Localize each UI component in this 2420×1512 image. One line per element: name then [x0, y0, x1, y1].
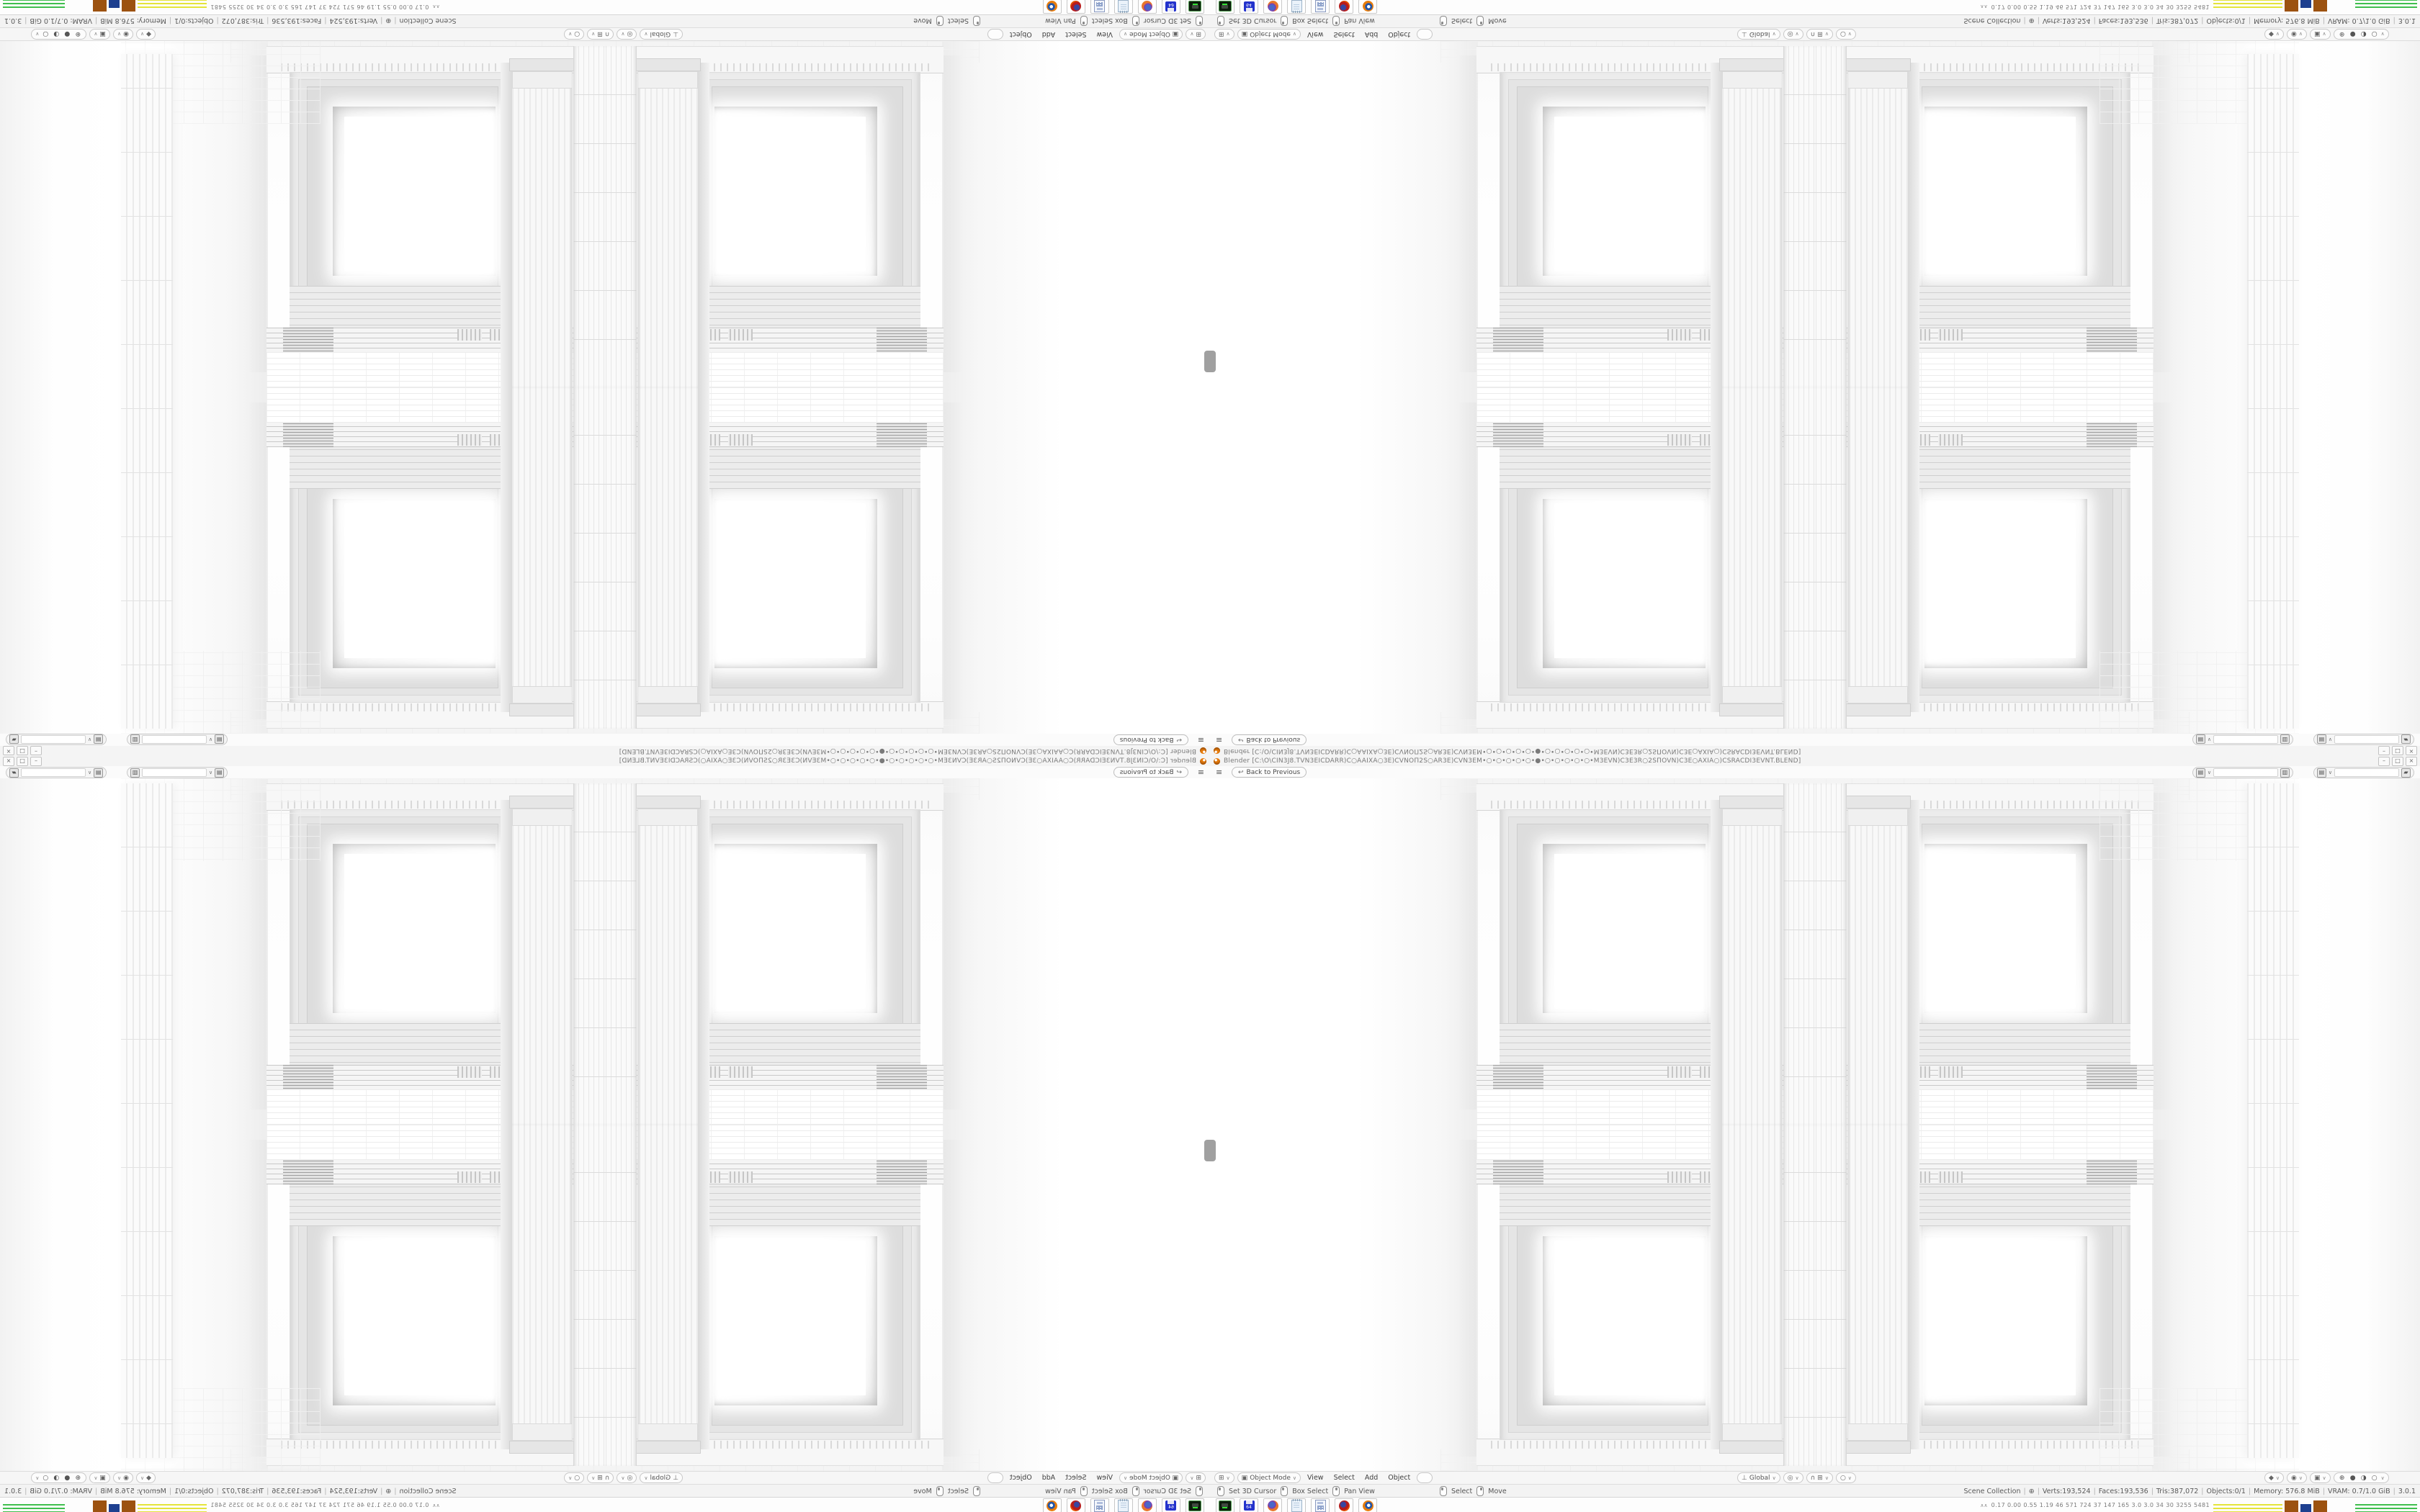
- snap-controls[interactable]: ∩ ⊞ ∨: [587, 29, 614, 40]
- desktop-taskbar: 64 ∧∧ 0.17 0.00 0.55 1.19 46 571 724 37 …: [0, 0, 1210, 15]
- render-window-glow: [344, 1241, 491, 1395]
- view-layer-selector[interactable]: ▤ ∨ ▰: [2313, 767, 2414, 778]
- kaleidoscope-canvas: Blender [C:\O\CIN3J8.TVN3EICDARR)C○AAIXA…: [0, 0, 2420, 1512]
- menu-select[interactable]: Select: [1062, 1474, 1090, 1482]
- menu-object[interactable]: Object: [1006, 1474, 1036, 1482]
- editor-type-selector[interactable]: ⊞ ∨: [1214, 29, 1234, 40]
- chevron-down-icon: ∨: [591, 1475, 595, 1481]
- render-ledge-shadow: [2087, 423, 2137, 447]
- menu-view[interactable]: View: [1304, 30, 1327, 38]
- mouse-left-icon: [1217, 1486, 1224, 1496]
- menu-object[interactable]: Object: [1384, 30, 1414, 38]
- view-layer-new-button[interactable]: ▰: [9, 768, 19, 778]
- close-button[interactable]: ×: [3, 757, 14, 766]
- scene-selector[interactable]: ▤ ∨ ▥: [127, 767, 228, 778]
- render-window-sill: [290, 1184, 511, 1226]
- monitor-values: 0.17 0.00 0.55 1.19 46 571 724 37 147 16…: [210, 1502, 429, 1508]
- chart-brown-bar: [122, 1, 135, 12]
- transform-orientation-selector[interactable]: ⊥ Global ∨: [1737, 29, 1780, 40]
- calculator-icon: [1095, 1, 1106, 13]
- show-gizmo-toggle[interactable]: ◆ ∨: [2264, 1472, 2284, 1483]
- render-ledge-shadow: [2087, 1065, 2137, 1089]
- menu-select[interactable]: Select: [1062, 30, 1090, 38]
- render-window-frame: [290, 447, 511, 703]
- render-ledge-shadow: [877, 328, 927, 352]
- proportional-editing-toggle[interactable]: ○ ∨: [564, 29, 584, 40]
- shading-mode-group[interactable]: ⊕ ● ◑ ○ ∨: [2334, 1472, 2389, 1483]
- show-overlays-toggle[interactable]: ◉ ∨: [113, 1472, 133, 1483]
- back-icon: ↩: [1176, 737, 1182, 744]
- scene-name-field[interactable]: [142, 768, 207, 777]
- xray-toggle[interactable]: ▣ ∨: [2310, 29, 2331, 40]
- scene-name-field[interactable]: [2213, 735, 2278, 744]
- monitor-chevrons-icon: ∧∧: [1980, 1504, 1987, 1507]
- viewport-scene-cell: [605, 387, 1210, 734]
- render-window-glow: [719, 1241, 866, 1395]
- xray-toggle[interactable]: ▣ ∨: [89, 1472, 110, 1483]
- shading-mode-group[interactable]: ⊕ ● ◑ ○ ∨: [31, 29, 86, 40]
- show-overlays-toggle[interactable]: ◉ ∨: [2287, 29, 2307, 40]
- status-bar: Set 3D Cursor Box Select Pan View Select…: [1210, 1484, 2420, 1498]
- chevron-down-icon[interactable]: ∨: [2208, 770, 2211, 775]
- chart-brown-bar: [122, 1500, 135, 1512]
- render-center-column: [573, 1125, 605, 1466]
- render-side-wall: [942, 778, 1210, 1125]
- taskbar-firefox-alt-button[interactable]: [1335, 0, 1353, 14]
- menu-object[interactable]: Object: [1006, 30, 1036, 38]
- chevron-down-icon: ∨: [1124, 1475, 1127, 1481]
- 3d-viewport[interactable]: [1210, 41, 2420, 734]
- render-window-opening: [1543, 1236, 1706, 1405]
- taskbar-floppy-button[interactable]: 64: [1162, 0, 1180, 14]
- desktop-taskbar: 64 ∧∧ 0.17 0.00 0.55 1.19 46 571 724 37 …: [1210, 0, 2420, 15]
- show-gizmo-toggle[interactable]: ◆ ∨: [136, 1472, 156, 1483]
- stat-verts: Verts:193,524: [329, 17, 377, 25]
- chevron-down-icon: ∨: [94, 32, 97, 37]
- maximize-button[interactable]: □: [17, 746, 28, 755]
- proportional-editing-toggle[interactable]: ○ ∨: [1836, 29, 1856, 40]
- chart-yellow-lines: [138, 1, 207, 9]
- chevron-down-icon[interactable]: ∨: [2329, 737, 2332, 742]
- close-button[interactable]: ×: [3, 746, 14, 755]
- mouse-drag-icon: [1281, 16, 1288, 26]
- scene-icon: ▤: [215, 735, 224, 744]
- back-to-previous-button[interactable]: ↩ Back to Previous: [1232, 767, 1307, 778]
- render-shadow-edge: [1458, 55, 1476, 372]
- calculator-icon: [1095, 1500, 1106, 1512]
- wireframe-shading-icon[interactable]: ⊕: [2338, 30, 2347, 39]
- render-window-frame: [1500, 1184, 1721, 1440]
- 3d-viewport[interactable]: [0, 41, 1210, 734]
- monitor-mini-chart: [2213, 1, 2417, 14]
- viewport-scene-cell: [605, 778, 1210, 1125]
- taskbar-blender-button[interactable]: [1043, 0, 1062, 14]
- viewport-scene-cell: [605, 41, 1210, 387]
- solid-shading-icon[interactable]: ●: [2349, 30, 2357, 39]
- render-bloom: [2299, 778, 2420, 1471]
- maximize-button[interactable]: □: [17, 757, 28, 766]
- maximize-button[interactable]: □: [2392, 746, 2403, 755]
- transform-orientation-selector[interactable]: ⊥ Global ∨: [640, 1472, 683, 1483]
- render-window-sill: [699, 1023, 920, 1065]
- scene-name-field[interactable]: [2213, 768, 2278, 777]
- blender-icon: [1363, 1500, 1373, 1511]
- view-layer-new-button[interactable]: ▰: [9, 735, 19, 744]
- render-pilaster: [637, 58, 698, 387]
- chevron-down-icon[interactable]: ∨: [2329, 770, 2332, 775]
- material-shading-icon[interactable]: ◑: [52, 1474, 60, 1482]
- view-layer-name-field[interactable]: [21, 768, 86, 777]
- render-window-sill: [1500, 286, 1721, 328]
- shading-mode-group[interactable]: ⊕ ● ◑ ○ ∨: [31, 1472, 86, 1483]
- taskbar-text-editor-button[interactable]: [1287, 1498, 1306, 1512]
- menu-icon[interactable]: ≡: [1216, 768, 1222, 777]
- taskbar-firefox-button[interactable]: [1263, 0, 1282, 14]
- mouse-drag-icon: [1132, 16, 1139, 26]
- active-tool-indicator[interactable]: [987, 1472, 1003, 1483]
- stat-faces: Faces:193,536: [272, 1488, 321, 1495]
- scene-new-button[interactable]: ▥: [130, 735, 140, 744]
- scene-new-button[interactable]: ▥: [2280, 735, 2290, 744]
- render-ledge-shadow: [283, 1065, 333, 1089]
- taskbar-blender-button[interactable]: [1358, 0, 1377, 14]
- chevron-down-icon: ∨: [2276, 1475, 2280, 1481]
- solid-shading-icon[interactable]: ●: [2349, 1474, 2357, 1482]
- rendered-shading-icon[interactable]: ○: [2370, 30, 2379, 39]
- render-bloom: [2299, 41, 2420, 734]
- hint-set-3d-cursor: Set 3D Cursor: [1144, 1488, 1191, 1495]
- snap-controls[interactable]: ∩ ⊞ ∨: [587, 1472, 614, 1483]
- active-tool-indicator[interactable]: [987, 29, 1003, 40]
- sidebar-toggle-tab[interactable]: [1210, 351, 1216, 372]
- render-ledge-shadow: [877, 1160, 927, 1184]
- firefox-icon: [1268, 1, 1278, 12]
- show-overlays-toggle[interactable]: ◉ ∨: [113, 29, 133, 40]
- material-shading-icon[interactable]: ◑: [2359, 30, 2368, 39]
- solid-shading-icon[interactable]: ●: [63, 1474, 71, 1482]
- firefox-icon: [1142, 1, 1153, 12]
- pivot-icon: ◎: [627, 1475, 632, 1482]
- menu-select[interactable]: Select: [1330, 1474, 1358, 1482]
- render-center-column: [1783, 46, 1815, 387]
- gizmo-icon: ◆: [146, 31, 151, 38]
- chevron-down-icon[interactable]: ∨: [2208, 737, 2211, 742]
- blender-topbar: ≡ ↩ Back to Previous ▤ ∨ ▥ ▤ ∨ ▰: [0, 733, 1210, 746]
- view-layer-new-button[interactable]: ▰: [2401, 768, 2411, 778]
- firefox-icon: [1268, 1500, 1278, 1511]
- blender-app-icon: [1214, 758, 1220, 765]
- taskbar-terminal-button[interactable]: [1186, 0, 1204, 14]
- sidebar-toggle-tab[interactable]: [1210, 1140, 1216, 1161]
- monitor-chevrons-icon: ∧∧: [432, 1504, 439, 1507]
- view-layer-selector[interactable]: ▤ ∨ ▰: [6, 767, 107, 778]
- close-button[interactable]: ×: [2406, 746, 2417, 755]
- material-shading-icon[interactable]: ◑: [52, 30, 60, 39]
- taskbar-firefox-alt-button[interactable]: [1335, 1498, 1353, 1512]
- taskbar-terminal-button[interactable]: [1216, 0, 1234, 14]
- render-window-glow: [1554, 854, 1701, 1009]
- mode-selector[interactable]: ▣ Object Mode ∨: [1119, 1472, 1183, 1483]
- hint-box-select: Box Select: [1292, 17, 1328, 25]
- mode-selector[interactable]: ▣ Object Mode ∨: [1237, 1472, 1301, 1483]
- render-bloom: [0, 778, 121, 1471]
- minimize-button[interactable]: –: [30, 757, 42, 766]
- mouse-right-icon: [1476, 1486, 1484, 1496]
- taskbar-firefox-alt-button[interactable]: [1067, 0, 1085, 14]
- xray-toggle[interactable]: ▣ ∨: [2310, 1472, 2331, 1483]
- view-layer-selector[interactable]: ▤ ∨ ▰: [6, 734, 107, 745]
- chevron-down-icon[interactable]: ∨: [209, 737, 212, 742]
- back-label: Back to Previous: [1120, 769, 1174, 776]
- chevron-down-icon[interactable]: ∨: [88, 737, 91, 742]
- stat-version: 3.0.1: [4, 17, 22, 25]
- menu-add[interactable]: Add: [1361, 1474, 1381, 1482]
- wireframe-shading-icon[interactable]: ⊕: [73, 30, 82, 39]
- xray-icon: ▣: [99, 31, 106, 38]
- render-pilaster: [1722, 796, 1783, 1125]
- render-shadow-edge: [1458, 793, 1476, 1110]
- scene-quadrant-bottom-left: [605, 1125, 1210, 1471]
- taskbar-firefox-button[interactable]: [1138, 0, 1157, 14]
- rendered-shading-icon[interactable]: ○: [41, 30, 50, 39]
- orientation-icon: ⊥: [1742, 31, 1747, 38]
- view-layer-selector[interactable]: ▤ ∨ ▰: [2313, 734, 2414, 745]
- taskbar-calculator-button[interactable]: [1311, 0, 1330, 14]
- scene-selector[interactable]: ▤ ∨ ▥: [2192, 767, 2293, 778]
- rendered-shading-icon[interactable]: ○: [2370, 1474, 2379, 1482]
- hint-set-3d-cursor: Set 3D Cursor: [1229, 17, 1276, 25]
- editor-type-selector[interactable]: ⊞ ∨: [1186, 29, 1206, 40]
- status-bar: Set 3D Cursor Box Select Pan View Select…: [0, 1484, 1210, 1498]
- minimize-button[interactable]: –: [2378, 757, 2390, 766]
- taskbar-calculator-button[interactable]: [1090, 1498, 1109, 1512]
- system-monitor-tray: ∧∧ 0.17 0.00 0.55 1.19 46 571 724 37 147…: [1980, 1498, 2417, 1512]
- transform-orientation-selector[interactable]: ⊥ Global ∨: [1737, 1472, 1780, 1483]
- mode-selector[interactable]: ▣ Object Mode ∨: [1119, 29, 1183, 40]
- active-tool-indicator[interactable]: [1417, 29, 1433, 40]
- menu-add[interactable]: Add: [1039, 30, 1059, 38]
- view-layer-new-button[interactable]: ▰: [2401, 735, 2411, 744]
- menu-select[interactable]: Select: [1330, 30, 1358, 38]
- stat-memory: Memory: 576.8 MiB: [2254, 1488, 2320, 1495]
- render-window-glow: [1554, 503, 1701, 658]
- chevron-down-icon[interactable]: ∨: [88, 770, 91, 775]
- editor-type-selector[interactable]: ⊞ ∨: [1186, 1472, 1206, 1483]
- object-mode-icon: ▣: [1173, 31, 1179, 38]
- render-window-glow: [719, 854, 866, 1009]
- render-window-sill: [1500, 447, 1721, 489]
- taskbar-firefox-button[interactable]: [1263, 1498, 1282, 1512]
- taskbar-terminal-button[interactable]: [1186, 1498, 1204, 1512]
- back-to-previous-button[interactable]: ↩ Back to Previous: [1113, 734, 1188, 745]
- scene-selector[interactable]: ▤ ∨ ▥: [2192, 734, 2293, 745]
- 3d-viewport[interactable]: [1210, 778, 2420, 1471]
- mouse-right-icon: [936, 1486, 944, 1496]
- render-pilaster: [512, 796, 573, 1125]
- snap-controls[interactable]: ∩ ⊞ ∨: [1806, 1472, 1833, 1483]
- taskbar-text-editor-button[interactable]: [1287, 0, 1306, 14]
- menu-view[interactable]: View: [1093, 1474, 1116, 1482]
- chevron-down-icon: ∨: [1825, 32, 1829, 37]
- overlays-icon: ◉: [2291, 31, 2297, 38]
- firefox-red-icon: [1071, 1, 1082, 12]
- monitor-values: 0.17 0.00 0.55 1.19 46 571 724 37 147 16…: [1991, 4, 2210, 10]
- menu-add[interactable]: Add: [1361, 30, 1381, 38]
- minimize-button[interactable]: –: [2378, 746, 2390, 755]
- magnet-icon: ∩: [1811, 1475, 1816, 1482]
- render-ledge-shadow: [1493, 328, 1543, 352]
- maximize-button[interactable]: □: [2392, 757, 2403, 766]
- mode-selector[interactable]: ▣ Object Mode ∨: [1237, 29, 1301, 40]
- viewport-scene-cell: [1210, 387, 1815, 734]
- transform-orientation-selector[interactable]: ⊥ Global ∨: [640, 29, 683, 40]
- scene-collection-label: Scene Collection: [399, 1488, 456, 1495]
- orientation-icon: ⊥: [673, 1475, 678, 1482]
- view-layer-name-field[interactable]: [21, 735, 86, 744]
- pivot-point-selector[interactable]: ◎ ∨: [1783, 29, 1803, 40]
- pivot-point-selector[interactable]: ◎ ∨: [617, 1472, 637, 1483]
- view-layer-name-field[interactable]: [2334, 768, 2399, 777]
- back-to-previous-button[interactable]: ↩ Back to Previous: [1113, 767, 1188, 778]
- pivot-icon: ◎: [1788, 1475, 1793, 1482]
- taskbar-firefox-button[interactable]: [1138, 1498, 1157, 1512]
- xray-toggle[interactable]: ▣ ∨: [89, 29, 110, 40]
- render-window-frame: [1500, 72, 1721, 328]
- scene-quadrant-bottom-left: [1210, 1125, 1815, 1471]
- stat-faces: Faces:193,536: [2099, 17, 2148, 25]
- taskbar-blender-button[interactable]: [1043, 1498, 1062, 1512]
- menu-add[interactable]: Add: [1039, 1474, 1059, 1482]
- render-window-glow: [1929, 117, 2076, 271]
- back-icon: ↩: [1176, 769, 1182, 776]
- view-layer-name-field[interactable]: [2334, 735, 2399, 744]
- close-button[interactable]: ×: [2406, 757, 2417, 766]
- render-window-frame: [1909, 447, 2130, 703]
- chevron-down-icon: ∨: [1848, 1475, 1852, 1481]
- chevron-down-icon[interactable]: ∨: [209, 770, 212, 775]
- taskbar-calculator-button[interactable]: [1311, 1498, 1330, 1512]
- terminal-icon: [1219, 1, 1232, 12]
- material-shading-icon[interactable]: ◑: [2359, 1474, 2368, 1482]
- active-tool-indicator[interactable]: [1417, 1472, 1433, 1483]
- sidebar-toggle-tab[interactable]: [1204, 351, 1210, 372]
- render-window-frame: [699, 809, 920, 1065]
- menu-icon[interactable]: ≡: [1198, 735, 1204, 744]
- taskbar-terminal-button[interactable]: [1216, 1498, 1234, 1512]
- wireframe-shading-icon[interactable]: ⊕: [2338, 1474, 2347, 1482]
- show-gizmo-toggle[interactable]: ◆ ∨: [2264, 29, 2284, 40]
- scene-new-button[interactable]: ▥: [2280, 768, 2290, 778]
- taskbar-text-editor-button[interactable]: [1114, 1498, 1133, 1512]
- render-side-wall: [1210, 1125, 1478, 1471]
- pivot-point-selector[interactable]: ◎ ∨: [617, 29, 637, 40]
- render-window-sill: [290, 1023, 511, 1065]
- render-window-opening: [333, 844, 496, 1013]
- rendered-shading-icon[interactable]: ○: [41, 1474, 50, 1482]
- chart-brown-bar: [2285, 1, 2298, 12]
- stat-tris: Tris:387,072: [2156, 17, 2198, 25]
- render-window-opening: [1543, 499, 1706, 668]
- chevron-down-icon: ∨: [568, 1475, 572, 1481]
- taskbar-text-editor-button[interactable]: [1114, 0, 1133, 14]
- menu-icon[interactable]: ≡: [1216, 735, 1222, 744]
- xray-icon: ▣: [99, 1475, 106, 1482]
- editor-type-icon: ⊞: [1196, 31, 1201, 38]
- render-ledge-shadow: [283, 423, 333, 447]
- render-window-opening: [714, 499, 877, 668]
- render-window-glow: [344, 854, 491, 1009]
- scene-selector[interactable]: ▤ ∨ ▥: [127, 734, 228, 745]
- menu-view[interactable]: View: [1304, 1474, 1327, 1482]
- sidebar-toggle-tab[interactable]: [1204, 1140, 1210, 1161]
- snap-target-icon: ⊞: [597, 1475, 603, 1482]
- taskbar-firefox-alt-button[interactable]: [1067, 1498, 1085, 1512]
- scene-new-button[interactable]: ▥: [130, 768, 140, 778]
- render-ledge-shadow: [283, 328, 333, 352]
- stat-version: 3.0.1: [2398, 17, 2416, 25]
- stat-faces: Faces:193,536: [2099, 1488, 2148, 1495]
- render-window-glow: [344, 117, 491, 271]
- solid-shading-icon[interactable]: ●: [63, 30, 71, 39]
- hint-pan-view: Pan View: [1045, 17, 1076, 25]
- proportional-editing-toggle[interactable]: ○ ∨: [1836, 1472, 1856, 1483]
- chart-yellow-lines: [2213, 1, 2282, 9]
- editor-type-selector[interactable]: ⊞ ∨: [1214, 1472, 1234, 1483]
- taskbar-floppy-button[interactable]: 64: [1240, 1498, 1258, 1512]
- render-window-sill: [699, 1184, 920, 1226]
- minimize-button[interactable]: –: [30, 746, 42, 755]
- gizmo-icon: ◆: [2269, 1475, 2274, 1482]
- monitor-values: 0.17 0.00 0.55 1.19 46 571 724 37 147 16…: [210, 4, 429, 10]
- calculator-icon: [1315, 1, 1326, 13]
- render-pilaster: [1722, 1125, 1783, 1454]
- chevron-down-icon: ∨: [2299, 32, 2303, 37]
- taskbar-floppy-button[interactable]: 64: [1240, 0, 1258, 14]
- back-to-previous-button[interactable]: ↩ Back to Previous: [1232, 734, 1307, 745]
- stat-verts: Verts:193,524: [329, 1488, 377, 1495]
- menu-icon[interactable]: ≡: [1198, 768, 1204, 777]
- render-fluted-column: [121, 783, 173, 1458]
- snap-controls[interactable]: ∩ ⊞ ∨: [1806, 29, 1833, 40]
- 3d-viewport[interactable]: [0, 778, 1210, 1471]
- hint-set-3d-cursor: Set 3D Cursor: [1229, 1488, 1276, 1495]
- show-gizmo-toggle[interactable]: ◆ ∨: [136, 29, 156, 40]
- proportional-editing-toggle[interactable]: ○ ∨: [564, 1472, 584, 1483]
- editor-type-icon: ⊞: [1219, 1475, 1224, 1482]
- wireframe-shading-icon[interactable]: ⊕: [73, 1474, 82, 1482]
- window-title-bar: Blender [C:\O\CIN3J8.TVN3EICDARR)C○AAIXA…: [1210, 745, 2420, 756]
- chart-brown-bar: [2313, 1500, 2327, 1512]
- globe-icon: ⊕: [2029, 17, 2035, 25]
- shading-mode-group[interactable]: ⊕ ● ◑ ○ ∨: [2334, 29, 2389, 40]
- show-overlays-toggle[interactable]: ◉ ∨: [2287, 1472, 2307, 1483]
- menu-view[interactable]: View: [1093, 30, 1116, 38]
- stat-vram: VRAM: 0.7/1.0 GiB: [30, 17, 92, 25]
- scene-name-field[interactable]: [142, 735, 207, 744]
- stat-memory: Memory: 576.8 MiB: [100, 17, 166, 25]
- pivot-point-selector[interactable]: ◎ ∨: [1783, 1472, 1803, 1483]
- stat-objects: Objects:0/1: [174, 17, 213, 25]
- taskbar-blender-button[interactable]: [1358, 1498, 1377, 1512]
- menu-object[interactable]: Object: [1384, 1474, 1414, 1482]
- taskbar-calculator-button[interactable]: [1090, 0, 1109, 14]
- snap-target-icon: ⊞: [597, 31, 603, 38]
- taskbar-floppy-button[interactable]: 64: [1162, 1498, 1180, 1512]
- chevron-down-icon: ∨: [117, 1475, 121, 1481]
- viewport-scene-cell: [1210, 1125, 1815, 1471]
- scene-quadrant-bottom-left: [1210, 41, 1815, 387]
- render-window-glow: [1554, 1241, 1701, 1395]
